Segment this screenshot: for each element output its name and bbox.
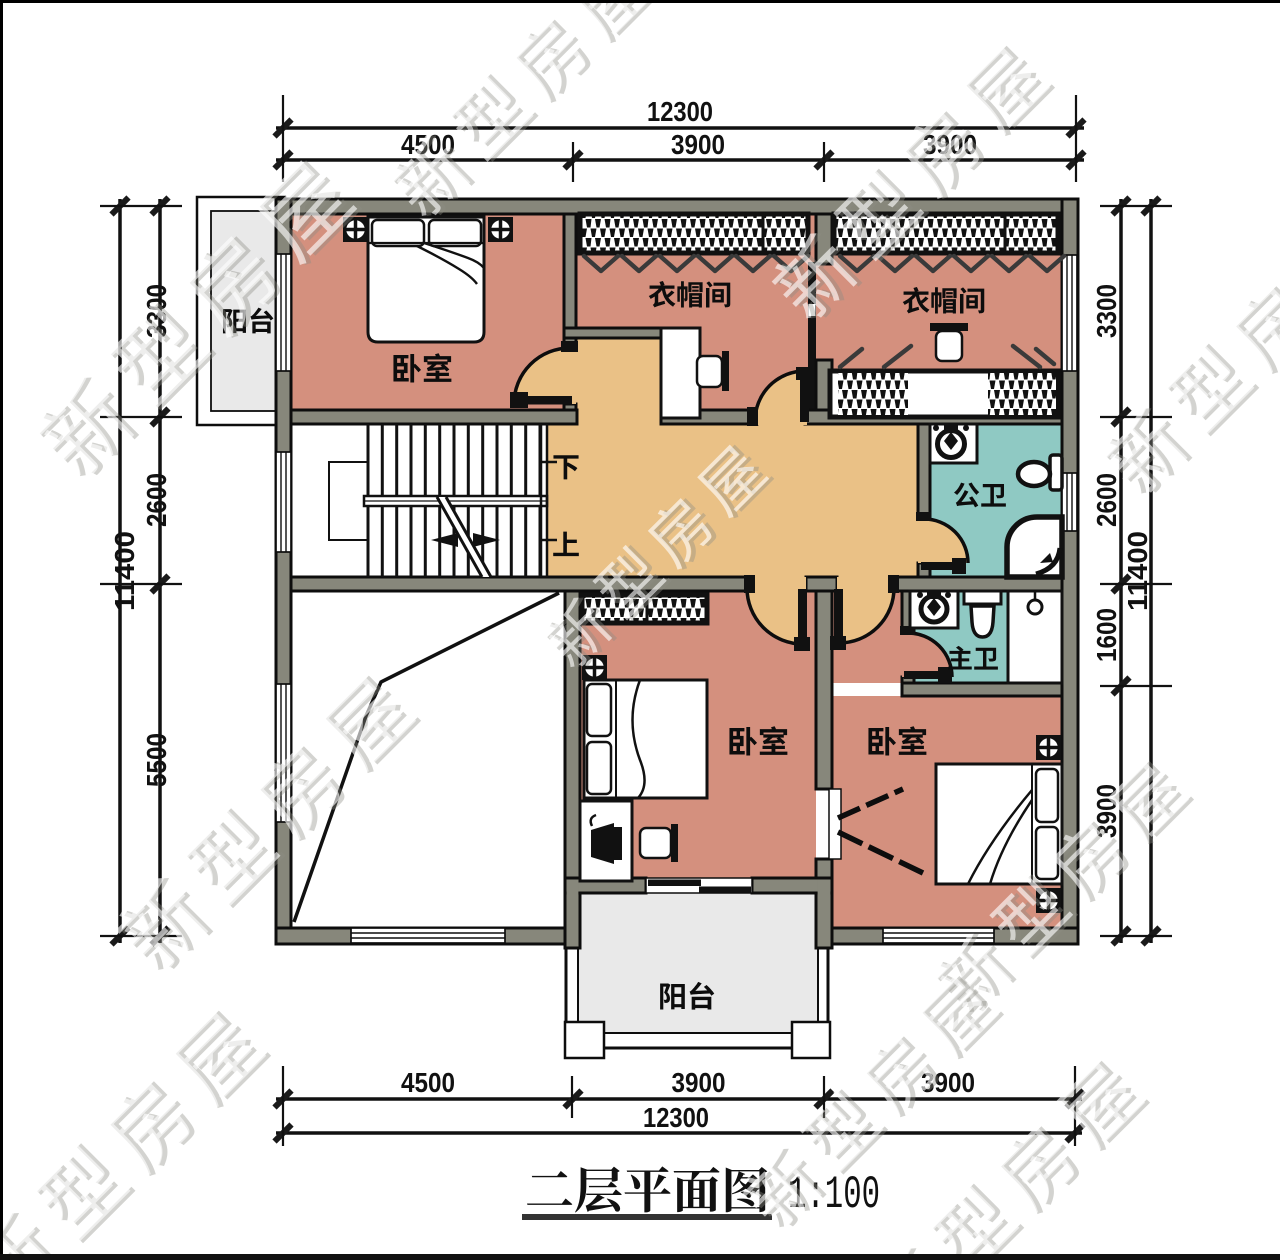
svg-text:2600: 2600 bbox=[141, 473, 172, 527]
svg-text:3900: 3900 bbox=[671, 129, 725, 160]
svg-text:12300: 12300 bbox=[647, 96, 713, 127]
svg-text:11400: 11400 bbox=[109, 531, 140, 611]
svg-text:4500: 4500 bbox=[401, 1067, 455, 1098]
svg-text:3900: 3900 bbox=[672, 1067, 726, 1098]
svg-text:1600: 1600 bbox=[1091, 608, 1122, 662]
svg-text:11400: 11400 bbox=[1122, 531, 1153, 611]
svg-text:2600: 2600 bbox=[1091, 473, 1122, 527]
svg-text:5500: 5500 bbox=[141, 733, 172, 787]
svg-text:3300: 3300 bbox=[1091, 284, 1122, 338]
svg-text:12300: 12300 bbox=[643, 1102, 709, 1133]
